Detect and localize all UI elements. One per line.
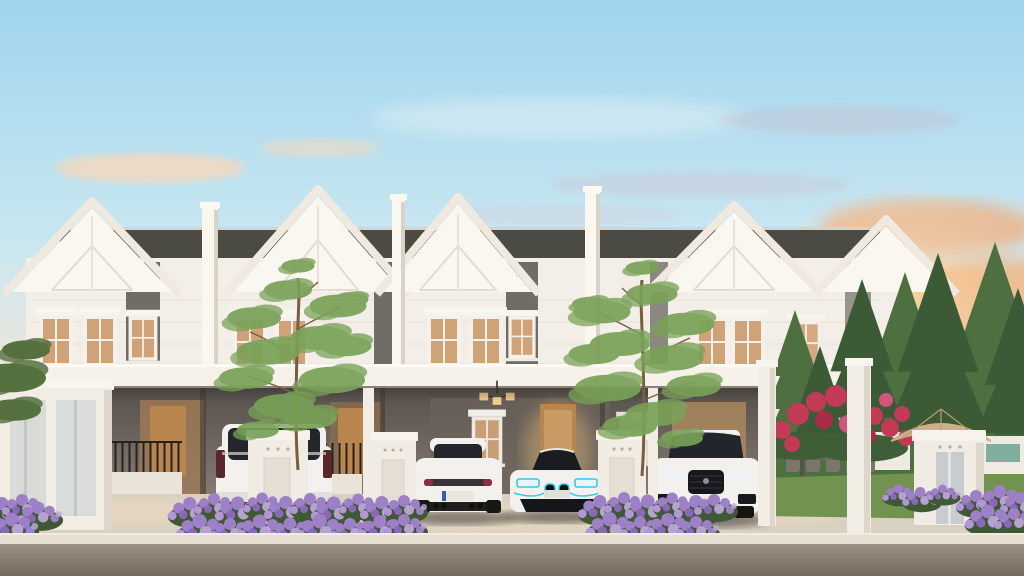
suv-tail-band [424,479,492,486]
i8-plate [544,490,570,498]
curb-highlight [0,533,1024,535]
suv-plate [442,491,474,501]
curb [0,534,1024,544]
rendering-canvas [0,0,1024,576]
jag-headlight-right [728,470,752,479]
road [0,544,1024,576]
garden-fence-glass [986,444,1020,462]
scene-svg [0,0,1024,576]
jag-headlight-left [660,470,684,479]
